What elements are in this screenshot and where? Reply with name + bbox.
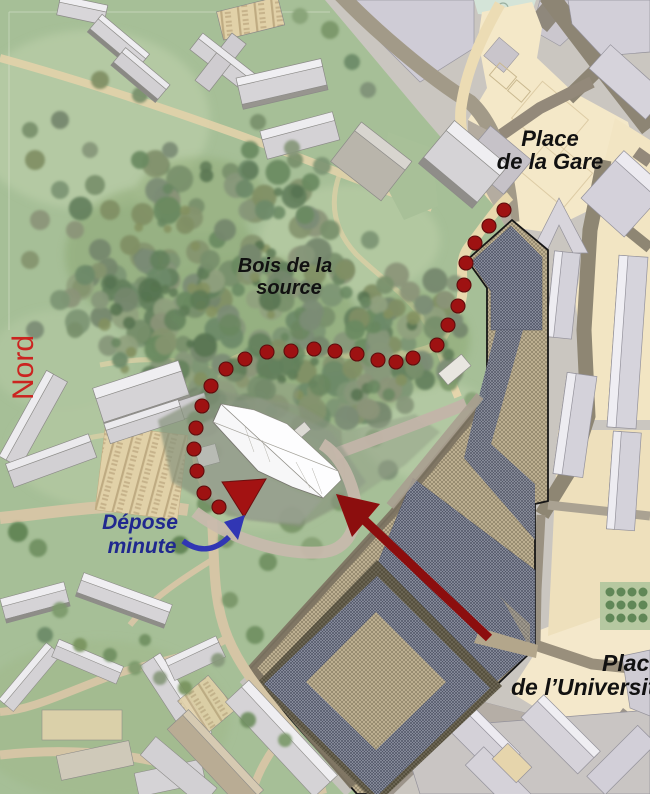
svg-text:de la Gare: de la Gare (497, 149, 603, 174)
svg-text:Place: Place (521, 126, 579, 151)
svg-text:minute: minute (108, 535, 177, 558)
svg-text:Nord: Nord (7, 335, 40, 400)
svg-text:Dépose: Dépose (102, 511, 178, 534)
svg-text:Place: Place (602, 650, 650, 676)
svg-text:de l’Université: de l’Université (511, 674, 650, 700)
svg-text:Bois de la: Bois de la (238, 255, 332, 277)
svg-text:source: source (256, 277, 322, 299)
